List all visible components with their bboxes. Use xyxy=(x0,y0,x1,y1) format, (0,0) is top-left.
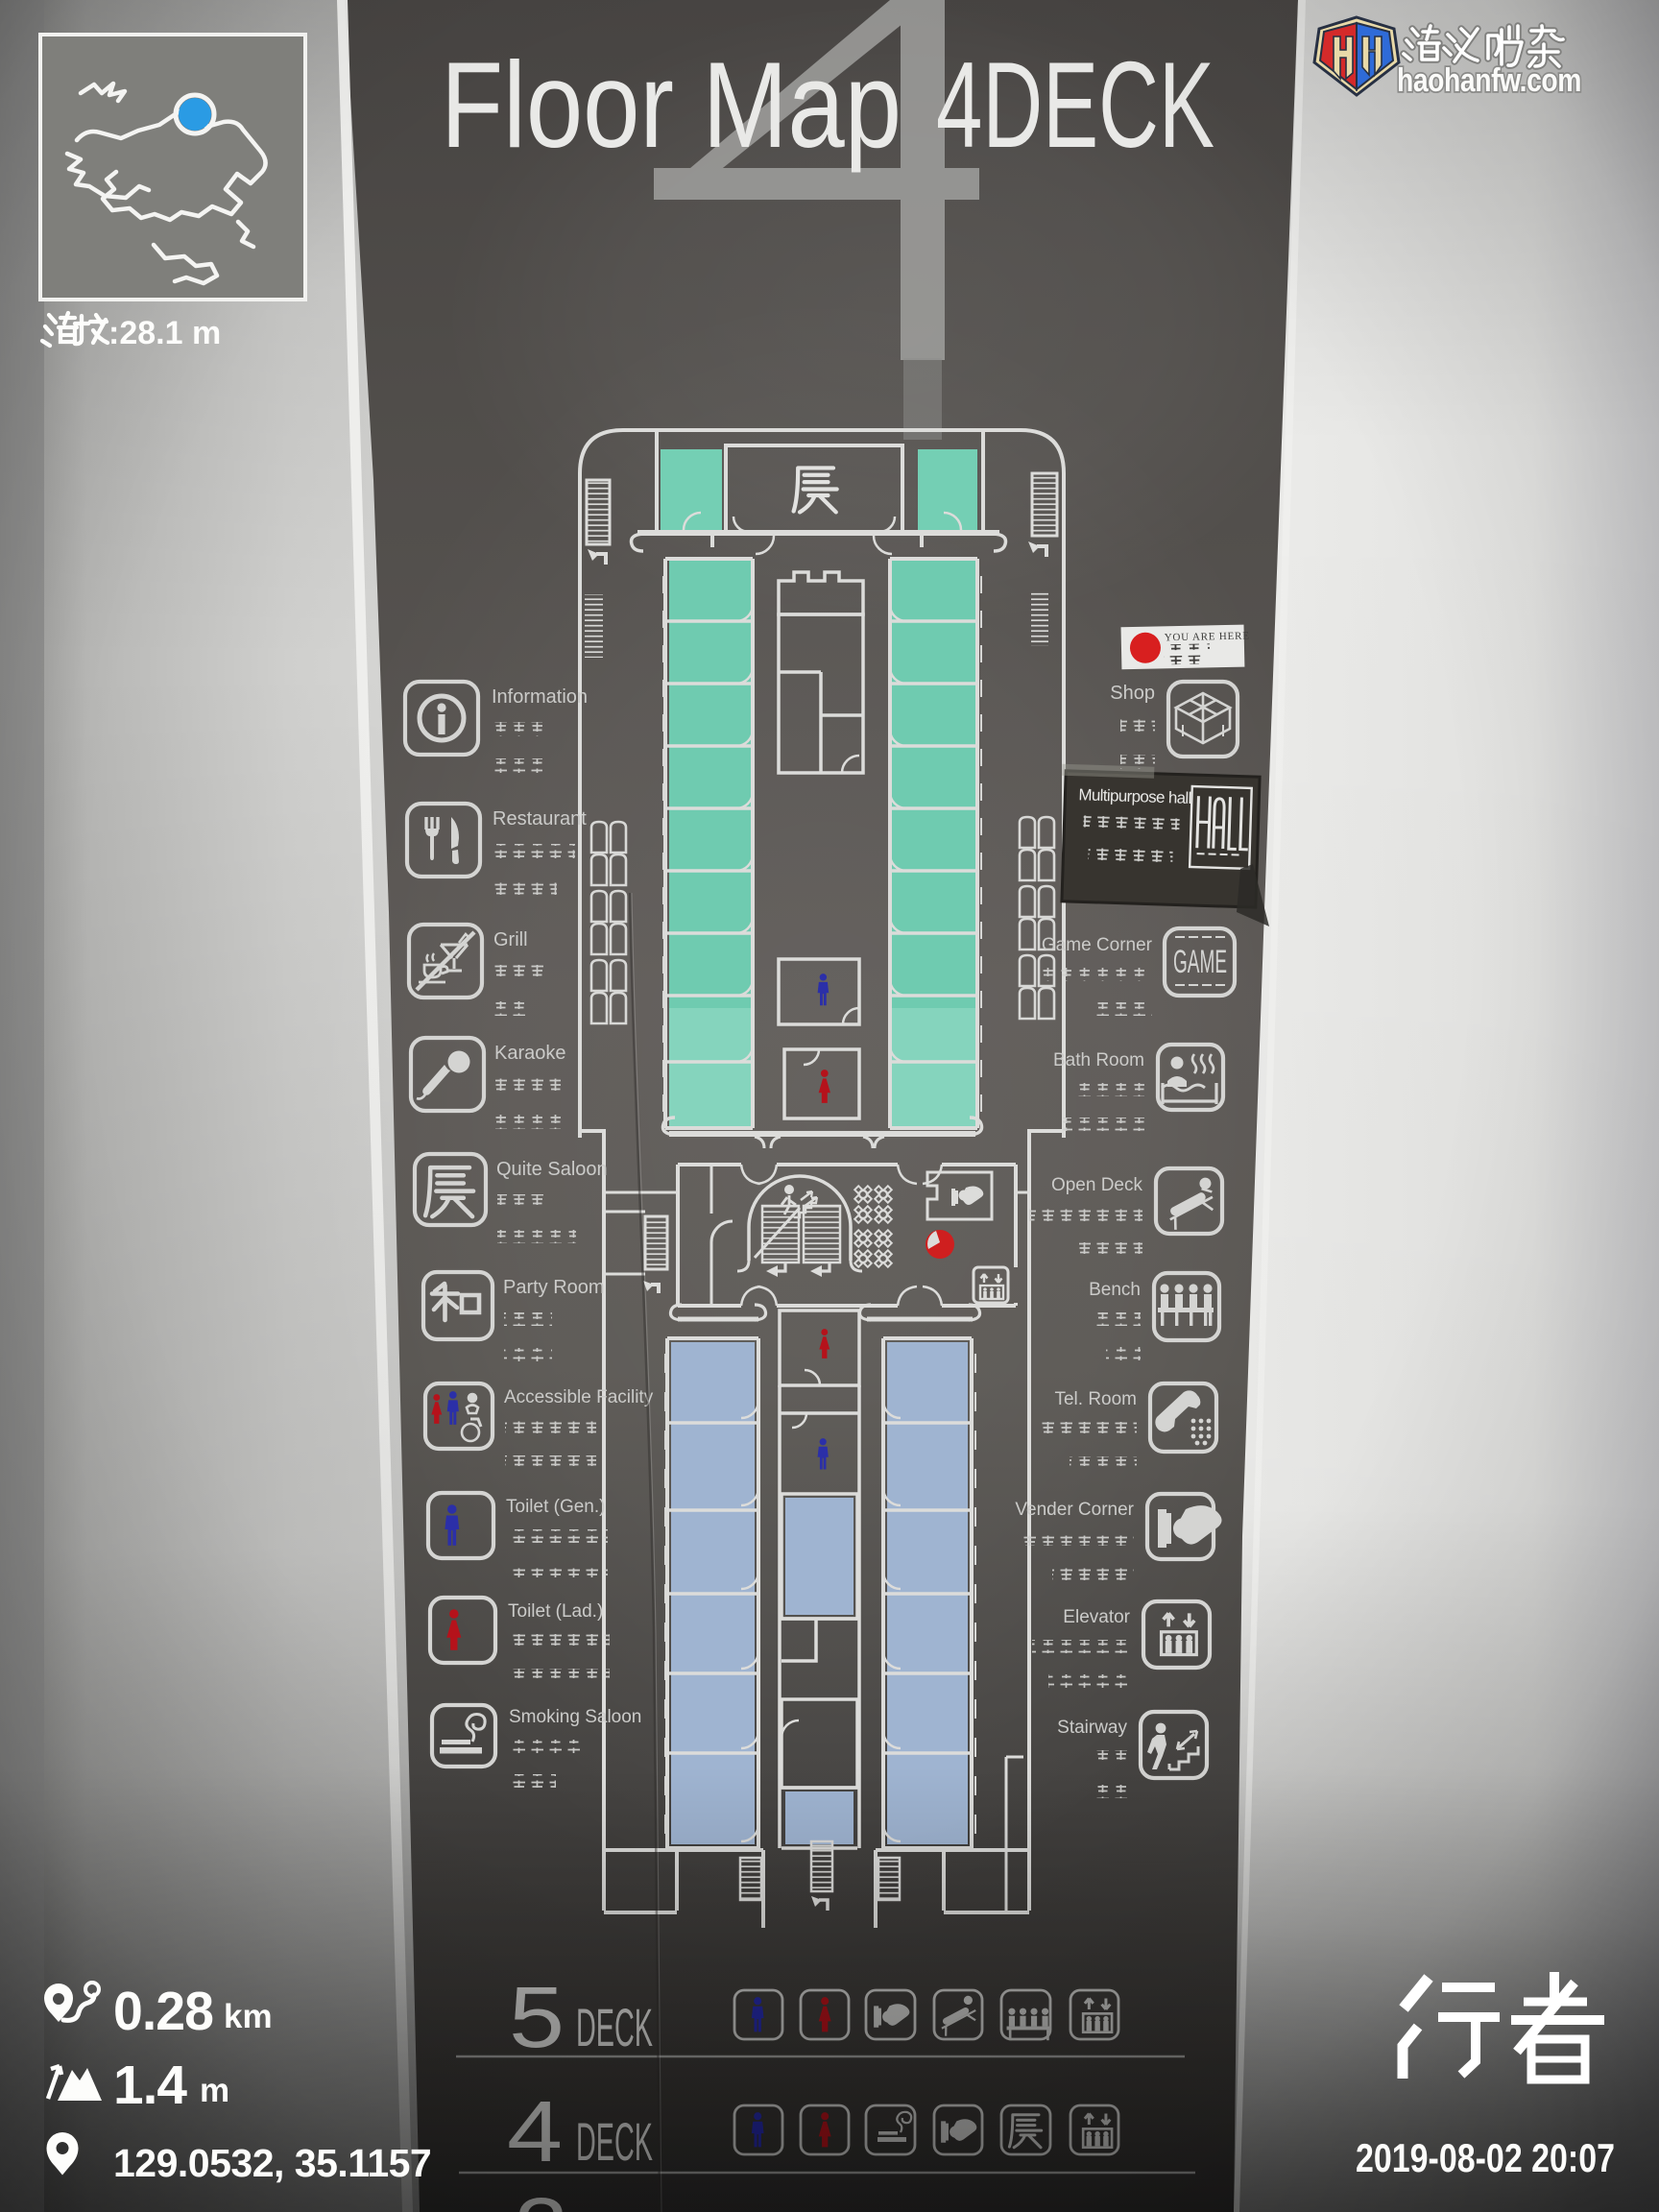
svg-text:0.28: 0.28 xyxy=(113,1981,213,2042)
svg-text:1.4: 1.4 xyxy=(113,2055,187,2116)
svg-text:2019-08-02 20:07: 2019-08-02 20:07 xyxy=(1356,2135,1615,2180)
svg-text:129.0532, 35.1157: 129.0532, 35.1157 xyxy=(113,2141,431,2185)
svg-text:haohanfw.com: haohanfw.com xyxy=(1397,62,1581,99)
svg-text::28.1 m: :28.1 m xyxy=(108,315,221,351)
svg-text:km: km xyxy=(224,1998,273,2035)
svg-text:m: m xyxy=(200,2072,229,2109)
